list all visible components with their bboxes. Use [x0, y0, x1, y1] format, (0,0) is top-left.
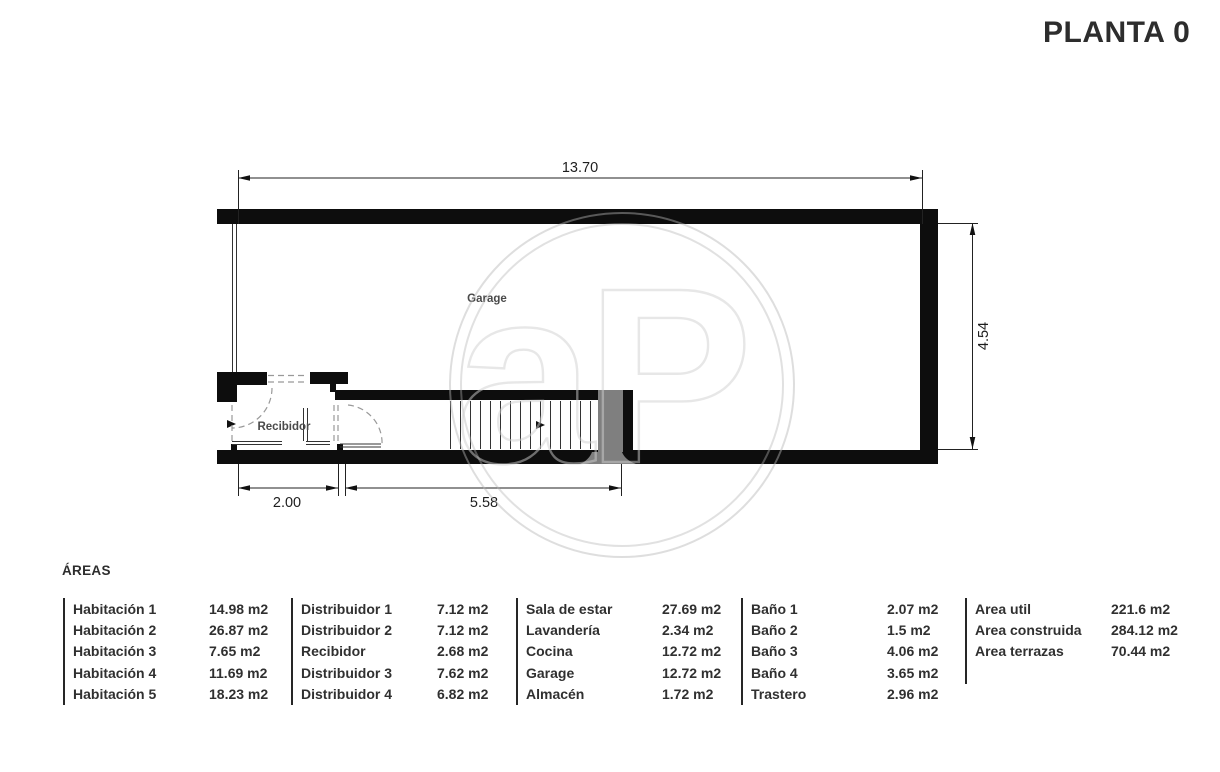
area-row: Habitación 37.65 m2 — [73, 641, 287, 662]
area-value: 27.69 m2 — [662, 599, 721, 620]
area-row: Almacén1.72 m2 — [526, 684, 740, 705]
area-row: Distribuidor 46.82 m2 — [301, 684, 515, 705]
area-row: Baño 43.65 m2 — [751, 663, 965, 684]
area-value: 7.62 m2 — [437, 663, 488, 684]
area-label: Distribuidor 2 — [301, 620, 437, 641]
areas-heading: ÁREAS — [62, 563, 111, 578]
area-value: 70.44 m2 — [1111, 641, 1170, 662]
area-row: Recibidor2.68 m2 — [301, 641, 515, 662]
area-value: 1.72 m2 — [662, 684, 713, 705]
area-row: Area terrazas70.44 m2 — [975, 641, 1197, 662]
watermark-letters: aP — [455, 236, 745, 515]
areas-column-estancias: Sala de estar27.69 m2 Lavandería2.34 m2 … — [516, 598, 740, 705]
area-label: Habitación 4 — [73, 663, 209, 684]
area-value: 2.34 m2 — [662, 620, 713, 641]
area-value: 6.82 m2 — [437, 684, 488, 705]
area-row: Habitación 114.98 m2 — [73, 599, 287, 620]
area-value: 12.72 m2 — [662, 663, 721, 684]
wall-stub-left — [231, 444, 237, 451]
area-label: Recibidor — [301, 641, 437, 662]
area-value: 4.06 m2 — [887, 641, 938, 662]
area-label: Distribuidor 3 — [301, 663, 437, 684]
wall-top — [217, 209, 938, 224]
area-label: Baño 2 — [751, 620, 887, 641]
area-label: Habitación 1 — [73, 599, 209, 620]
area-label: Distribuidor 1 — [301, 599, 437, 620]
area-label: Area construida — [975, 620, 1111, 641]
area-row: Area util221.6 m2 — [975, 599, 1197, 620]
area-row: Baño 34.06 m2 — [751, 641, 965, 662]
area-label: Trastero — [751, 684, 887, 705]
area-row: Sala de estar27.69 m2 — [526, 599, 740, 620]
area-value: 11.69 m2 — [209, 663, 267, 684]
area-row: Distribuidor 37.62 m2 — [301, 663, 515, 684]
area-row: Habitación 518.23 m2 — [73, 684, 287, 705]
area-row: Baño 21.5 m2 — [751, 620, 965, 641]
dim-width-total: 13.70 — [562, 160, 598, 176]
area-row: Habitación 226.87 m2 — [73, 620, 287, 641]
area-value: 14.98 m2 — [209, 599, 268, 620]
watermark: aP — [450, 213, 794, 557]
area-label: Baño 4 — [751, 663, 887, 684]
thin-lines — [232, 224, 381, 447]
area-value: 18.23 m2 — [209, 684, 268, 705]
area-value: 7.65 m2 — [209, 641, 260, 662]
area-row: Trastero2.96 m2 — [751, 684, 965, 705]
areas-column-banos: Baño 12.07 m2 Baño 21.5 m2 Baño 34.06 m2… — [741, 598, 965, 705]
area-label: Cocina — [526, 641, 662, 662]
area-row: Baño 12.07 m2 — [751, 599, 965, 620]
area-row: Area construida284.12 m2 — [975, 620, 1197, 641]
wall-recibidor-corner — [217, 372, 237, 402]
area-row: Distribuidor 27.12 m2 — [301, 620, 515, 641]
area-value: 3.65 m2 — [887, 663, 938, 684]
room-label-recibidor: Recibidor — [257, 421, 311, 433]
area-label: Area util — [975, 599, 1111, 620]
area-value: 12.72 m2 — [662, 641, 721, 662]
area-label: Baño 3 — [751, 641, 887, 662]
area-label: Baño 1 — [751, 599, 887, 620]
area-value: 7.12 m2 — [437, 599, 488, 620]
dim-height-right: 4.54 — [976, 322, 992, 350]
area-label: Almacén — [526, 684, 662, 705]
dim-recibidor-width: 2.00 — [273, 495, 301, 511]
floorplan-drawing: 13.70 4.54 2.00 5.58 Garage Recibidor aP — [0, 0, 1220, 560]
area-label: Area terrazas — [975, 641, 1111, 662]
area-label: Distribuidor 4 — [301, 684, 437, 705]
area-row: Lavandería2.34 m2 — [526, 620, 740, 641]
areas-column-habitaciones: Habitación 114.98 m2 Habitación 226.87 m… — [63, 598, 287, 705]
area-value: 284.12 m2 — [1111, 620, 1178, 641]
area-label: Lavandería — [526, 620, 662, 641]
area-label: Habitación 3 — [73, 641, 209, 662]
area-label: Sala de estar — [526, 599, 662, 620]
area-value: 26.87 m2 — [209, 620, 268, 641]
area-label: Habitación 2 — [73, 620, 209, 641]
area-value: 221.6 m2 — [1111, 599, 1170, 620]
area-row: Distribuidor 17.12 m2 — [301, 599, 515, 620]
area-value: 2.07 m2 — [887, 599, 938, 620]
area-value: 2.68 m2 — [437, 641, 488, 662]
area-label: Garage — [526, 663, 662, 684]
area-row: Garage12.72 m2 — [526, 663, 740, 684]
area-label: Habitación 5 — [73, 684, 209, 705]
area-value: 1.5 m2 — [887, 620, 931, 641]
wall-right — [920, 209, 938, 464]
area-row: Cocina12.72 m2 — [526, 641, 740, 662]
areas-column-totales: Area util221.6 m2 Area construida284.12 … — [965, 598, 1197, 684]
door-swing-arc — [348, 405, 382, 445]
areas-column-distribuidores: Distribuidor 17.12 m2 Distribuidor 27.12… — [291, 598, 515, 705]
area-row: Habitación 411.69 m2 — [73, 663, 287, 684]
area-value: 2.96 m2 — [887, 684, 938, 705]
wall-recibidor-top-right — [310, 372, 348, 384]
area-value: 7.12 m2 — [437, 620, 488, 641]
